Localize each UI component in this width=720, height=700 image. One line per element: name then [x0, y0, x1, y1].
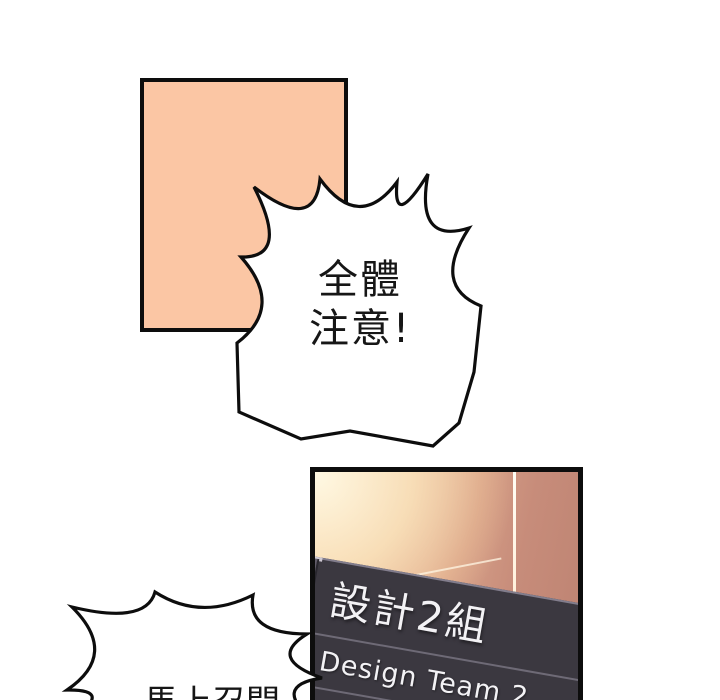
- shout-bubble-top-text: 全體 注意!: [228, 168, 492, 456]
- photo-wall-background: 設計2組 Design Team 2: [315, 472, 578, 700]
- shout-bubble-top: 全體 注意!: [228, 168, 492, 456]
- door-sign: 設計2組 Design Team 2: [315, 554, 578, 700]
- wall-light-line-diagonal: [411, 557, 502, 577]
- shout-top-line2: 注意!: [309, 305, 411, 354]
- wall-light-line-vertical: [513, 472, 516, 610]
- shout-top-line1: 全體: [318, 256, 402, 305]
- sign-face: 設計2組 Design Team 2: [315, 559, 578, 700]
- photo-panel: 設計2組 Design Team 2: [310, 467, 583, 700]
- shout-bubble-bottom: 馬上召開: [58, 583, 328, 700]
- comic-page: 設計2組 Design Team 2 全體 注意! 馬上召開: [0, 0, 720, 700]
- shout-bubble-bottom-text: 馬上召開: [144, 675, 280, 700]
